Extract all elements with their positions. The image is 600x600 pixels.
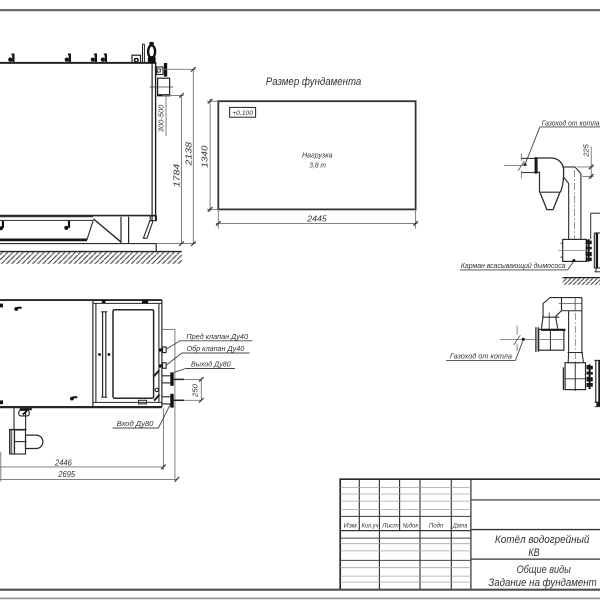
svg-text:№док: №док (403, 521, 419, 529)
svg-text:Пред клапан Ду40: Пред клапан Ду40 (186, 332, 248, 341)
svg-text:2446: 2446 (54, 459, 72, 468)
svg-text:Подп: Подп (429, 521, 444, 529)
svg-text:Карман всасывающий дымососа: Карман всасывающий дымососа (461, 261, 566, 270)
svg-text:1340: 1340 (199, 145, 209, 168)
svg-text:Котёл водогрейный: Котёл водогрейный (495, 534, 590, 546)
svg-text:2138: 2138 (184, 141, 193, 167)
svg-text:225: 225 (581, 143, 590, 158)
svg-text:Выход Ду80: Выход Ду80 (191, 360, 231, 369)
svg-text:Нагрузка: Нагрузка (302, 150, 333, 159)
svg-text:+0,100: +0,100 (232, 110, 253, 117)
svg-text:Дата: Дата (452, 522, 468, 529)
svg-text:Размер фундамента: Размер фундамента (266, 76, 362, 88)
svg-text:Газоход от котла: Газоход от котла (450, 352, 512, 361)
svg-text:КВ: КВ (528, 547, 539, 559)
svg-text:Общие виды: Общие виды (517, 564, 571, 576)
svg-text:250: 250 (191, 383, 200, 398)
svg-text:Задание на фундамент: Задание на фундамент (488, 577, 597, 589)
svg-text:Кол.уч: Кол.уч (362, 522, 379, 529)
svg-text:Обр клапан Ду40: Обр клапан Ду40 (187, 344, 246, 353)
svg-text:3,8 т: 3,8 т (309, 160, 326, 169)
svg-text:2695: 2695 (57, 470, 75, 479)
svg-text:Лист: Лист (381, 522, 399, 529)
svg-text:2445: 2445 (306, 213, 327, 223)
svg-text:1784: 1784 (173, 163, 182, 187)
svg-text:Изм: Изм (344, 522, 358, 529)
svg-text:Вход Ду80: Вход Ду80 (117, 419, 155, 428)
svg-text:300-500: 300-500 (157, 104, 166, 132)
svg-text:Газоход от котла: Газоход от котла (542, 118, 600, 127)
